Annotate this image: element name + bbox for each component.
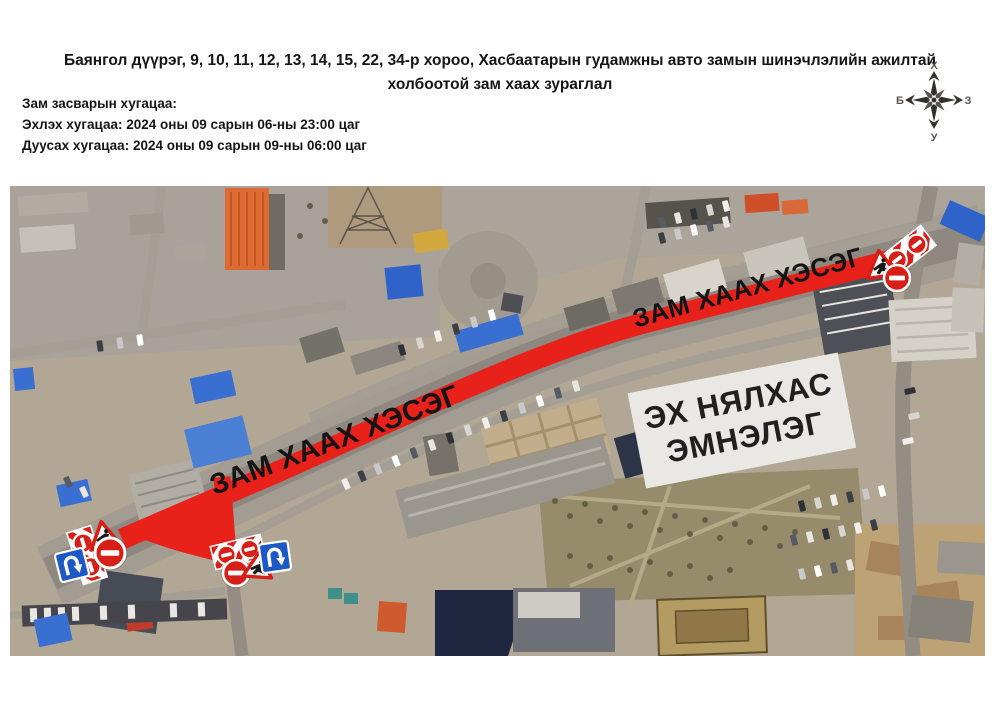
schedule-end: Дуусах хугацаа: 2024 оны 09 сарын 09-ны …: [22, 135, 367, 156]
compass-south-label: У: [931, 132, 938, 144]
u-turn-sign-icon: [259, 541, 292, 574]
no-entry-sign-icon: [883, 264, 912, 293]
compass-star: [905, 71, 963, 129]
compass-rose-icon: Х У З Б: [894, 56, 974, 144]
schedule-heading: Зам засварын хугацаа:: [22, 93, 367, 114]
compass-east-label: З: [965, 95, 972, 107]
page-title: Баянгол дүүрэг, 9, 10, 11, 12, 13, 14, 1…: [0, 49, 1000, 97]
satellite-map-canvas: ЗАМ ХААХ ХЭСЭГ ЗАМ ХААХ ХЭСЭГ ЭХ НЯЛХАС …: [10, 186, 985, 656]
compass-west-label: Б: [896, 95, 904, 107]
schedule-start: Эхлэх хугацаа: 2024 оны 09 сарын 06-ны 2…: [22, 114, 367, 135]
compass-north-label: Х: [930, 60, 938, 72]
page-title-line1: Баянгол дүүрэг, 9, 10, 11, 12, 13, 14, 1…: [0, 49, 1000, 73]
road-closure-notice: Баянгол дүүрэг, 9, 10, 11, 12, 13, 14, 1…: [0, 0, 1000, 707]
no-entry-sign-icon: [94, 537, 127, 570]
u-turn-sign-icon: [54, 547, 89, 582]
schedule-block: Зам засварын хугацаа: Эхлэх хугацаа: 202…: [22, 93, 367, 156]
satellite-map: ЗАМ ХААХ ХЭСЭГ ЗАМ ХААХ ХЭСЭГ ЭХ НЯЛХАС …: [10, 186, 985, 656]
